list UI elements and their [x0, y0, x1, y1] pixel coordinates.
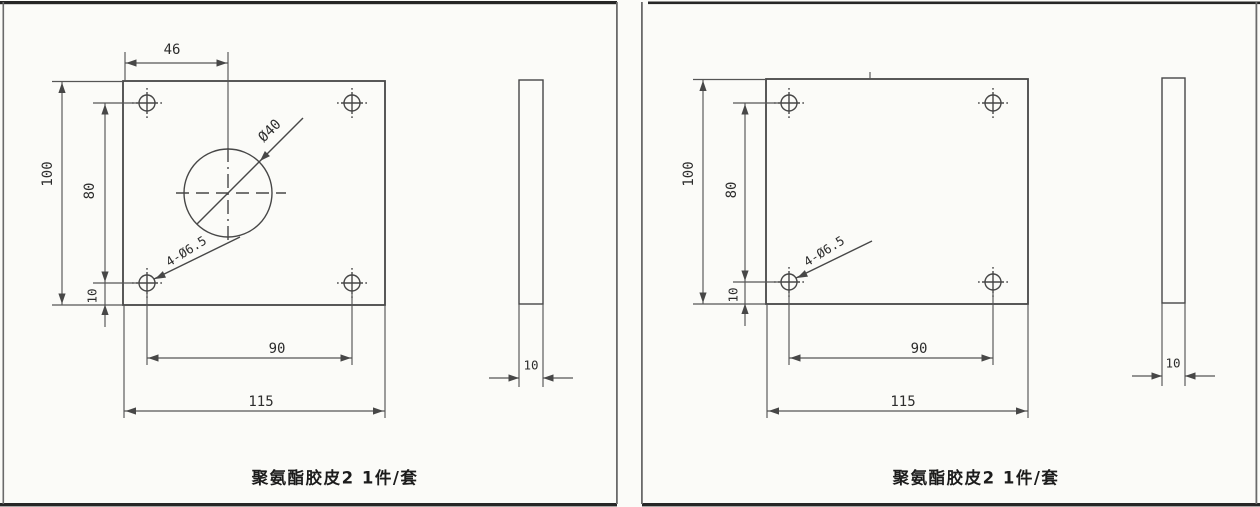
- dim-hole-col-span: 90: [147, 292, 352, 365]
- dim-value: 115: [248, 394, 273, 410]
- right-page-right-edge: [1256, 2, 1258, 504]
- dim-value: 115: [890, 394, 915, 410]
- side-view-outline: [519, 80, 543, 304]
- side-view-outline: [1162, 78, 1185, 303]
- dim-arrow-icon: [58, 83, 65, 94]
- dim-value: 46: [164, 42, 181, 58]
- top-border-right-page: [648, 2, 1260, 5]
- dim-arrow-icon: [101, 104, 108, 115]
- dim-arrow-icon: [101, 272, 108, 283]
- dim-arrow-icon: [1016, 407, 1027, 414]
- dim-value: 10: [726, 287, 741, 302]
- bottom-border-right-page: [642, 503, 1260, 506]
- corner-holes-callout: 4-Ø6.5: [153, 233, 240, 283]
- dim-arrow-icon: [699, 293, 706, 304]
- dim-value: 100: [40, 161, 56, 186]
- part-caption: 聚氨酯胶皮2 1件/套: [892, 468, 1060, 488]
- dim-arrow-icon: [769, 407, 780, 414]
- left-page-left-edge: [3, 2, 5, 504]
- panel-right: 100 80 10 90: [681, 72, 1215, 488]
- dim-arrow-icon: [790, 354, 801, 361]
- dim-arrow-icon: [148, 354, 159, 361]
- dim-arrow-icon: [58, 294, 65, 305]
- dim-arrow-icon: [217, 59, 228, 66]
- corner-holes-callout: 4-Ø6.5: [795, 233, 872, 282]
- dim-value: 100: [681, 161, 697, 186]
- dim-arrow-icon: [341, 354, 352, 361]
- dim-value: 10: [85, 288, 100, 303]
- side-view: 10: [489, 80, 573, 387]
- dim-value: 80: [724, 182, 740, 199]
- left-page-right-edge: [616, 2, 618, 504]
- plate-outline: [766, 79, 1028, 304]
- dim-total-width: 115: [124, 305, 385, 418]
- dim-thickness-value: 10: [1165, 356, 1180, 371]
- top-border-left-page: [0, 1, 617, 4]
- corner-hole-top-right-icon: [337, 88, 367, 118]
- bottom-border-left-page: [0, 503, 617, 506]
- drawing-sheet: Ø40 46 100 80: [0, 0, 1260, 507]
- plate-outline: [123, 81, 385, 305]
- dim-arrow-icon: [741, 104, 748, 115]
- right-page-left-edge: [641, 2, 643, 504]
- dim-arrow-icon: [373, 407, 384, 414]
- dim-arrow-icon: [699, 81, 706, 92]
- dim-hole-row-span: 80: [724, 103, 781, 282]
- dim-value: 80: [82, 183, 98, 200]
- dim-value: 90: [911, 341, 928, 357]
- dim-arrow-icon: [126, 59, 137, 66]
- dim-arrow-icon: [101, 305, 108, 316]
- dim-arrow-icon: [126, 407, 137, 414]
- dim-hole-col-span: 90: [789, 292, 993, 365]
- dim-value: 90: [269, 341, 286, 357]
- dim-arrow-icon: [1152, 372, 1163, 379]
- dim-top-width: 46: [125, 42, 228, 81]
- dim-arrow-icon: [509, 374, 520, 381]
- dim-arrow-icon: [982, 354, 993, 361]
- dim-arrow-icon: [1185, 372, 1196, 379]
- dim-arrow-icon: [741, 304, 748, 315]
- dim-total-width: 115: [767, 304, 1028, 418]
- corner-hole-top-right-icon: [978, 88, 1008, 118]
- dim-arrow-icon: [543, 374, 554, 381]
- panel-left: Ø40 46 100 80: [40, 42, 573, 488]
- drawing-canvas: Ø40 46 100 80: [0, 0, 1260, 507]
- dim-hole-row-span: 80: [82, 103, 139, 283]
- dim-arrow-icon: [741, 271, 748, 282]
- part-caption: 聚氨酯胶皮2 1件/套: [251, 468, 419, 488]
- diameter-leader-line: [197, 118, 303, 224]
- dim-thickness-value: 10: [523, 358, 538, 373]
- side-view: 10: [1132, 78, 1215, 386]
